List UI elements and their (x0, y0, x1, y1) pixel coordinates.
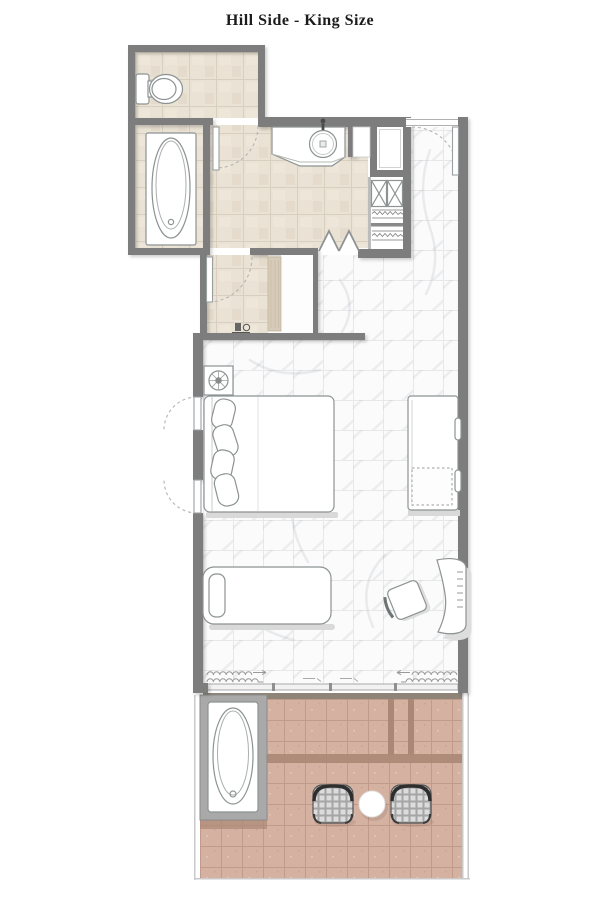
shower (377, 127, 403, 170)
wardrobe (368, 177, 403, 249)
chaise-lounge (203, 567, 335, 630)
floorplan-page: Hill Side - King Size (0, 0, 600, 900)
floorplan-drawing (0, 0, 600, 900)
wicker-chair-right (391, 785, 434, 827)
wicker-chair-left (313, 785, 356, 827)
outdoor-bathtub (200, 695, 267, 820)
terrace-screen-right (408, 699, 414, 755)
minibar-counter (268, 255, 313, 333)
nightstand-lamp (204, 366, 233, 395)
vanity-niche (353, 127, 370, 157)
toilet-fixture (136, 74, 183, 104)
terrace-divider-band (267, 754, 462, 763)
indoor-bathtub (146, 133, 196, 245)
sofa (408, 396, 461, 516)
terrace-screen-left (388, 699, 394, 755)
faucet-icon (321, 119, 326, 124)
king-bed (204, 396, 338, 518)
window-wall (203, 683, 458, 691)
